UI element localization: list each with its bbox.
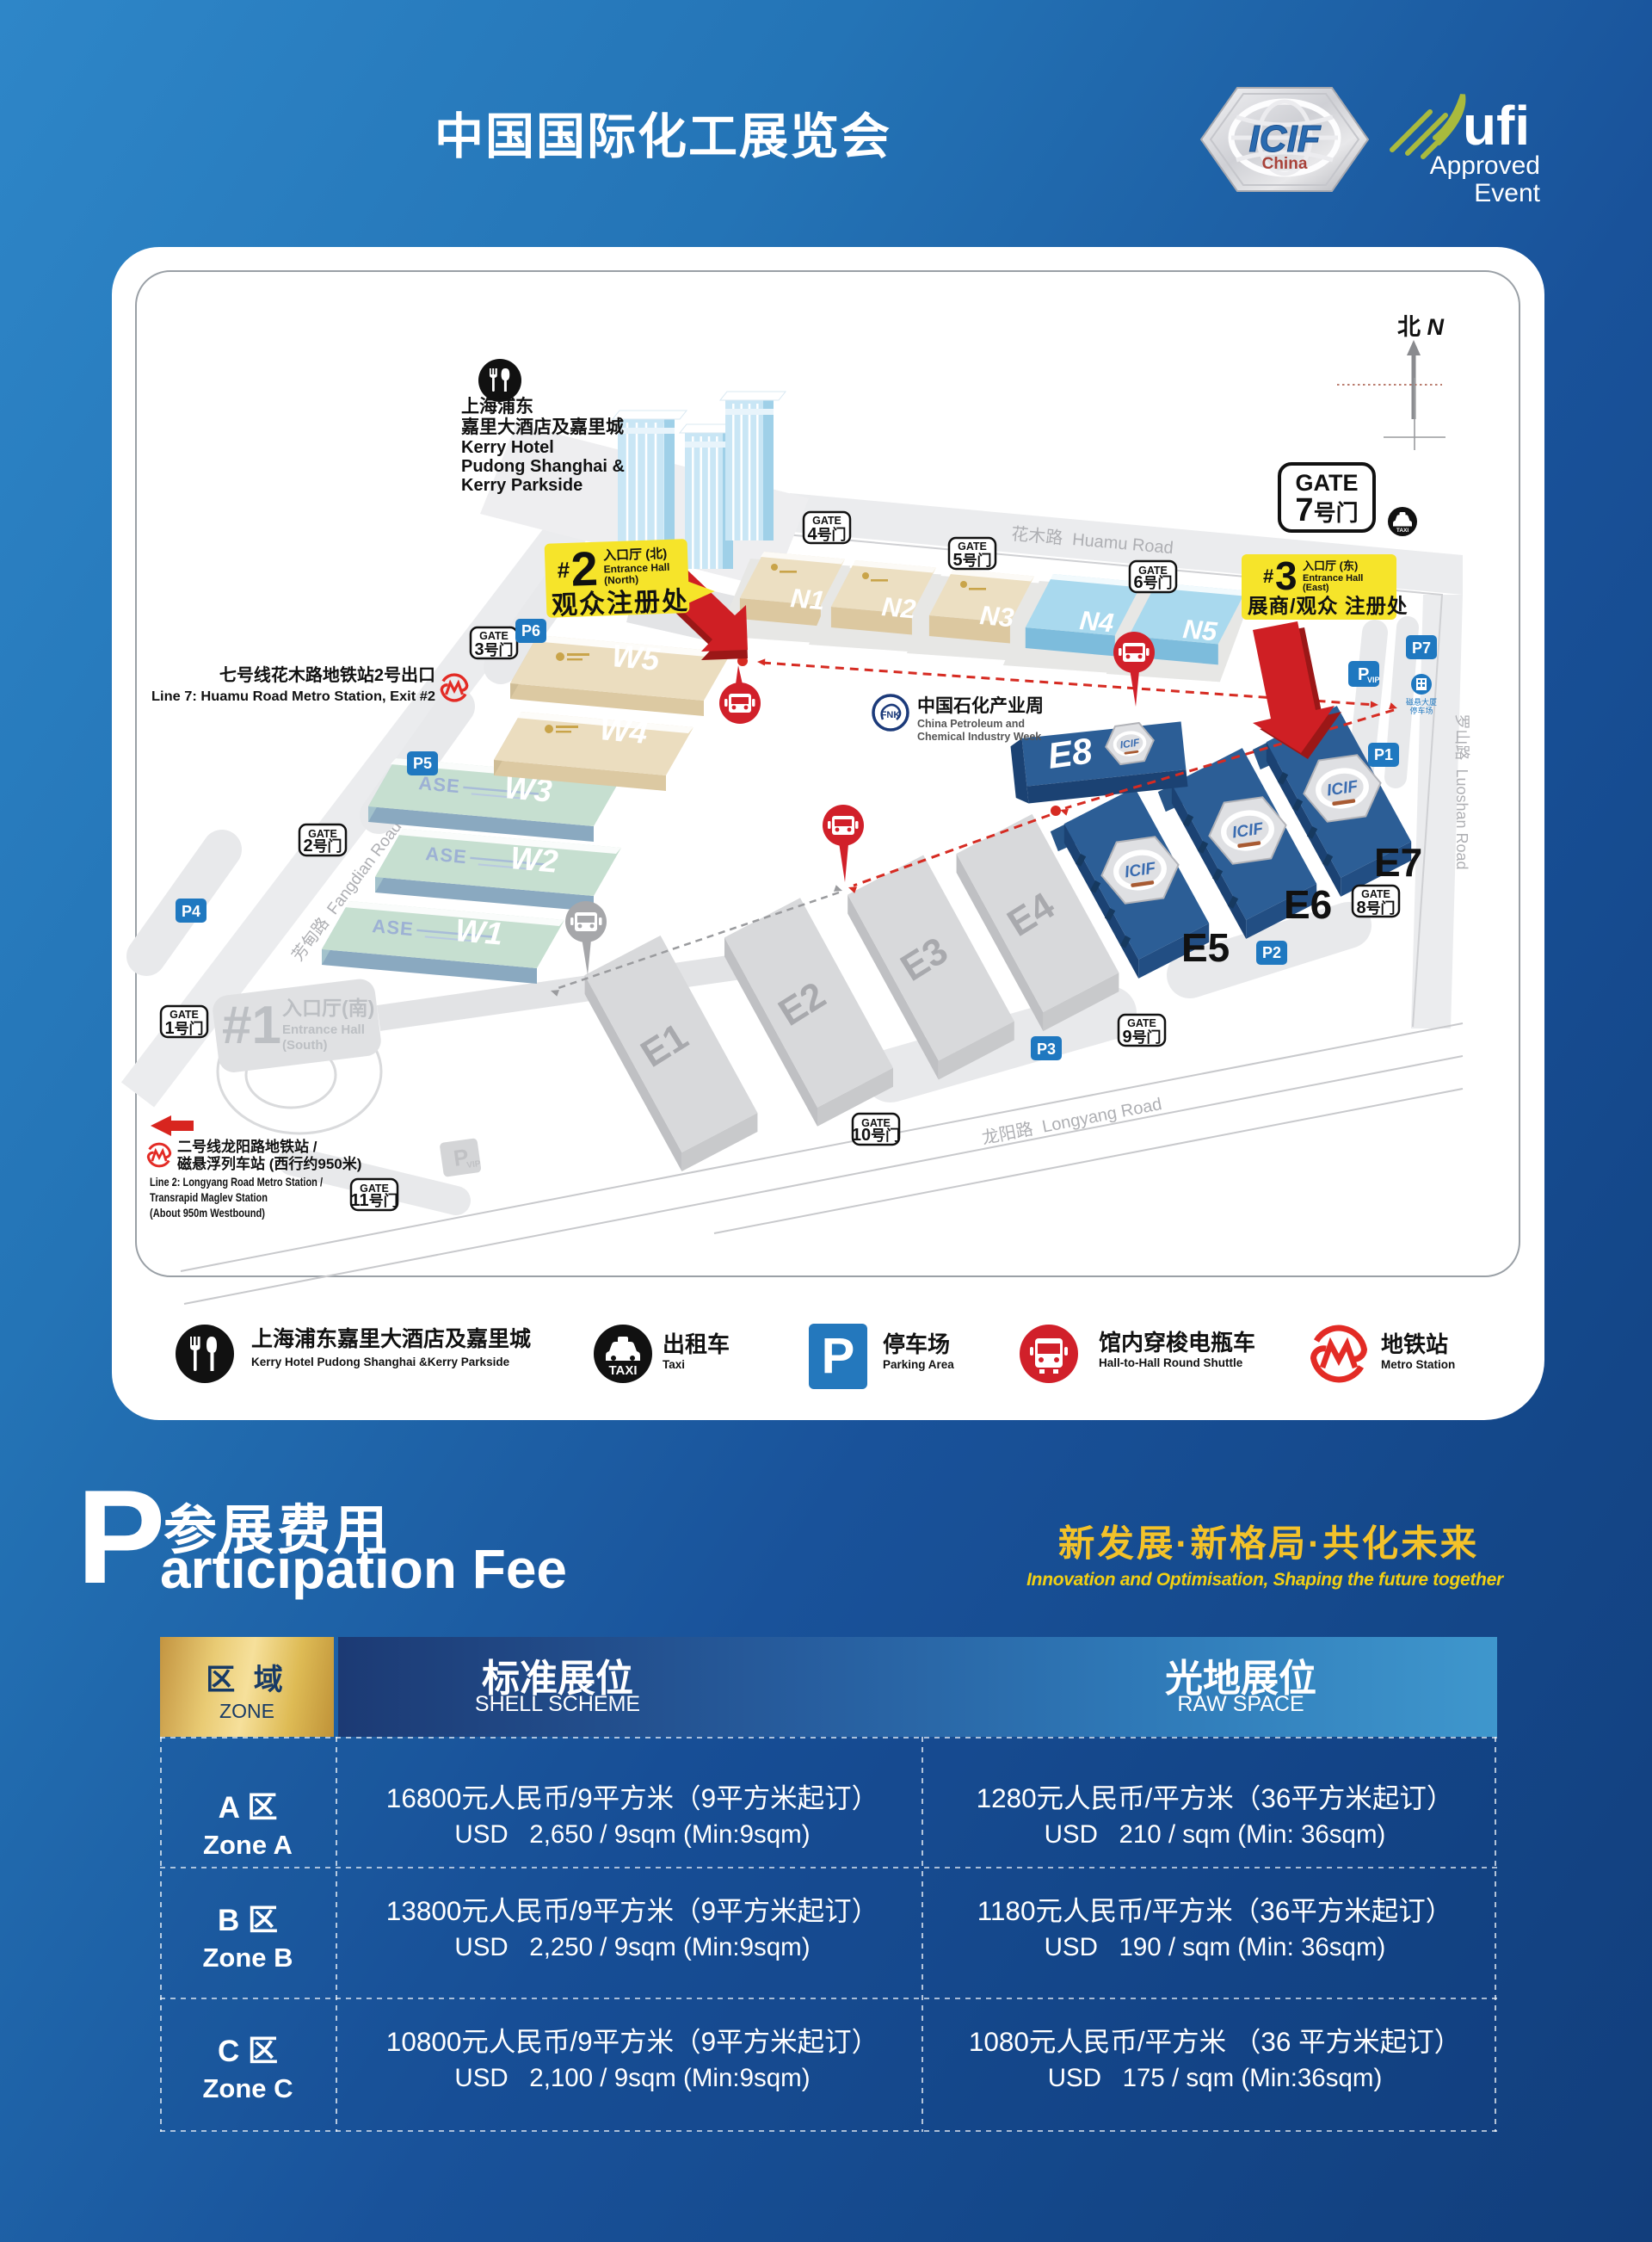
svg-text:FNK: FNK [881, 710, 901, 720]
svg-text:(About 950m Westbound): (About 950m Westbound) [150, 1206, 265, 1220]
svg-text:中国石化产业周: 中国石化产业周 [917, 695, 1044, 716]
svg-text:入口厅(南): 入口厅(南) [282, 997, 374, 1019]
svg-text:W5: W5 [610, 638, 662, 677]
svg-text:磁悬浮列车站 (西行约950米): 磁悬浮列车站 (西行约950米) [177, 1155, 361, 1172]
svg-text:观众注册处: 观众注册处 [552, 587, 690, 621]
svg-text:8号门: 8号门 [1356, 899, 1395, 917]
svg-text:停车场: 停车场 [1409, 706, 1433, 715]
svg-text:(East): (East) [1303, 583, 1329, 593]
svg-text:1号门: 1号门 [164, 1019, 203, 1038]
svg-text:N1: N1 [789, 583, 826, 615]
svg-text:入口厅 (东): 入口厅 (东) [1303, 559, 1358, 572]
svg-text:ufi: ufi [1463, 95, 1530, 157]
svg-text:嘉里大酒店及嘉里城: 嘉里大酒店及嘉里城 [461, 417, 624, 437]
svg-text:Kerry Parkside: Kerry Parkside [461, 476, 583, 495]
svg-text:Event: Event [1474, 179, 1540, 207]
svg-text:Line 7: Huamu Road Metro Stati: Line 7: Huamu Road Metro Station, Exit #… [151, 689, 435, 704]
svg-text:E8: E8 [1045, 730, 1095, 776]
svg-text:(North): (North) [604, 573, 638, 586]
svg-text:China Petroleum and: China Petroleum and [917, 718, 1025, 730]
svg-text:P7: P7 [1412, 639, 1431, 657]
svg-text:Approved: Approved [1430, 151, 1540, 180]
svg-text:VIP: VIP [466, 1159, 482, 1170]
svg-text:China: China [1262, 155, 1308, 173]
svg-text:龙阳路 Longyang Road: 龙阳路 Longyang Road [980, 1094, 1163, 1148]
svg-text:P5: P5 [413, 755, 432, 772]
svg-text:P2: P2 [1262, 944, 1281, 961]
svg-text:ASE: ASE [418, 772, 461, 797]
svg-text:9号门: 9号门 [1122, 1028, 1161, 1047]
svg-text:罗山路 Luoshan Road: 罗山路 Luoshan Road [1453, 713, 1470, 869]
svg-text:磁悬大厦: 磁悬大厦 [1406, 697, 1437, 707]
svg-text:N5: N5 [1181, 614, 1218, 646]
svg-text:七号线花木路地铁站2号出口: 七号线花木路地铁站2号出口 [219, 664, 435, 685]
svg-text:Pudong Shanghai &: Pudong Shanghai & [461, 457, 625, 476]
svg-text:Chemical Industry Week: Chemical Industry Week [917, 731, 1041, 743]
svg-text:#: # [1263, 565, 1273, 587]
svg-text:Line 2: Longyang Road Metro St: Line 2: Longyang Road Metro Station / [150, 1175, 323, 1189]
svg-text:二号线龙阳路地铁站 /: 二号线龙阳路地铁站 / [177, 1138, 317, 1155]
svg-text:P3: P3 [1037, 1041, 1056, 1058]
svg-text:W1: W1 [453, 912, 504, 952]
svg-text:上海浦东: 上海浦东 [461, 396, 533, 417]
svg-text:N4: N4 [1078, 605, 1115, 638]
svg-text:6号门: 6号门 [1133, 573, 1172, 592]
svg-text:10号门: 10号门 [852, 1126, 900, 1145]
svg-text:E7: E7 [1374, 840, 1422, 885]
svg-text:E5: E5 [1181, 925, 1230, 970]
svg-text:北 N: 北 N [1397, 314, 1445, 340]
svg-text:Kerry Hotel: Kerry Hotel [461, 438, 554, 457]
svg-text:展商/观众 注册处: 展商/观众 注册处 [1248, 594, 1409, 617]
svg-text:P6: P6 [521, 622, 540, 639]
svg-text:ICIF: ICIF [1248, 118, 1321, 160]
svg-text:3号门: 3号门 [474, 640, 513, 659]
svg-text:11号门: 11号门 [350, 1191, 398, 1210]
svg-text:2号门: 2号门 [303, 837, 342, 855]
svg-text:(South): (South) [282, 1038, 327, 1053]
svg-text:5号门: 5号门 [952, 551, 991, 570]
svg-text:E6: E6 [1284, 882, 1332, 927]
svg-text:W2: W2 [509, 840, 559, 880]
svg-text:TAXI: TAXI [608, 1363, 637, 1378]
svg-text:VIP: VIP [1367, 676, 1380, 684]
svg-text:3: 3 [1275, 553, 1298, 598]
svg-text:#: # [557, 557, 570, 584]
svg-text:N2: N2 [880, 591, 917, 624]
svg-text:W4: W4 [598, 711, 649, 750]
svg-text:ASE: ASE [425, 843, 468, 868]
svg-text:TAXI: TAXI [1396, 528, 1409, 534]
svg-text:4号门: 4号门 [807, 525, 846, 544]
svg-text:#1: #1 [222, 996, 281, 1055]
svg-text:ASE: ASE [372, 915, 415, 940]
svg-text:Transrapid Maglev Station: Transrapid Maglev Station [150, 1190, 268, 1204]
svg-text:2: 2 [570, 541, 599, 596]
svg-text:Entrance Hall: Entrance Hall [282, 1022, 365, 1037]
svg-text:N3: N3 [978, 600, 1015, 633]
svg-text:P1: P1 [1374, 746, 1393, 763]
svg-text:P4: P4 [182, 903, 200, 920]
